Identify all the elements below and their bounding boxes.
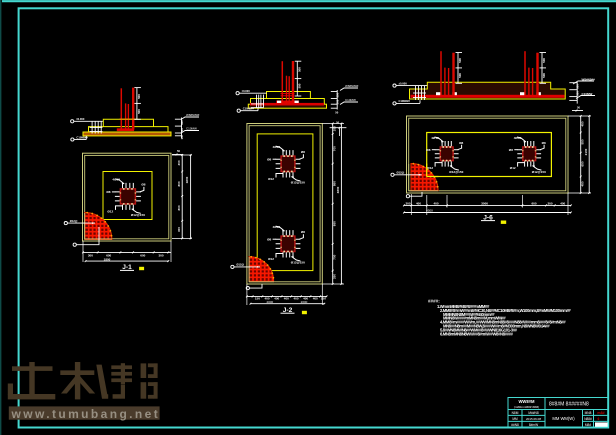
svg-text:MM: MM bbox=[512, 417, 518, 421]
svg-text:600: 600 bbox=[140, 254, 145, 258]
svg-text:C10N8##: C10N8## bbox=[243, 107, 255, 111]
svg-text:±0.000: ±0.000 bbox=[399, 81, 408, 85]
svg-text:8#8#M 8#####N8: 8#8#M 8#####N8 bbox=[549, 402, 589, 408]
svg-text:Ø8: Ø8 bbox=[542, 141, 546, 145]
svg-text:Ø8: Ø8 bbox=[459, 141, 463, 145]
svg-text:250: 250 bbox=[333, 274, 337, 279]
svg-text:500: 500 bbox=[458, 73, 462, 78]
svg-text:300: 300 bbox=[88, 254, 93, 258]
svg-text:Ø12@150: Ø12@150 bbox=[449, 170, 463, 174]
svg-text:700: 700 bbox=[333, 254, 337, 259]
svg-text:Ø8: Ø8 bbox=[267, 237, 271, 241]
svg-text:150: 150 bbox=[321, 297, 326, 301]
svg-text:W8#N8##: W8#N8## bbox=[186, 113, 200, 117]
svg-text:MM WM(W): MM WM(W) bbox=[552, 416, 575, 421]
svg-text:250: 250 bbox=[333, 126, 337, 131]
svg-text:(m##mmM## ##M): (m##mmM## ##M) bbox=[514, 405, 539, 409]
svg-text:400: 400 bbox=[313, 297, 318, 301]
svg-text:4Ø18: 4Ø18 bbox=[431, 136, 439, 140]
svg-text:8#mW: 8#mW bbox=[529, 423, 538, 427]
svg-text:2000: 2000 bbox=[266, 300, 273, 304]
svg-text:450: 450 bbox=[581, 181, 585, 186]
svg-text:50: 50 bbox=[177, 149, 180, 153]
svg-text:300: 300 bbox=[576, 84, 580, 89]
svg-text:450: 450 bbox=[581, 121, 585, 126]
svg-text:500: 500 bbox=[542, 73, 546, 78]
svg-text:700: 700 bbox=[333, 146, 337, 151]
svg-text:400: 400 bbox=[416, 202, 421, 206]
svg-text:400: 400 bbox=[560, 202, 565, 206]
svg-text:±0.000: ±0.000 bbox=[76, 117, 85, 121]
svg-text:300: 300 bbox=[177, 227, 181, 232]
svg-text:Ø8: Ø8 bbox=[426, 148, 430, 152]
svg-text:Ø12@150: Ø12@150 bbox=[131, 213, 145, 217]
svg-text:Ø8: Ø8 bbox=[301, 150, 305, 154]
svg-text:300: 300 bbox=[180, 120, 184, 125]
svg-text:2000: 2000 bbox=[301, 300, 308, 304]
svg-text:100: 100 bbox=[180, 134, 184, 139]
svg-text:4Ø18: 4Ø18 bbox=[273, 145, 281, 149]
svg-text:3000: 3000 bbox=[481, 202, 488, 206]
svg-text:400: 400 bbox=[293, 297, 298, 301]
svg-text:400: 400 bbox=[433, 202, 438, 206]
svg-text:3800: 3800 bbox=[336, 186, 340, 193]
svg-text:Ø12: Ø12 bbox=[268, 257, 274, 261]
svg-text:Ø12@150: Ø12@150 bbox=[532, 170, 546, 174]
svg-text:www.tumubang.net: www.tumubang.net bbox=[11, 407, 161, 421]
svg-text:800: 800 bbox=[177, 181, 181, 186]
svg-text:Ø12: Ø12 bbox=[107, 209, 113, 213]
svg-text:N88#: N88# bbox=[584, 417, 592, 421]
svg-text:Ø8: Ø8 bbox=[301, 230, 305, 234]
svg-text:300: 300 bbox=[547, 202, 552, 206]
svg-text:N8M: N8M bbox=[512, 411, 519, 415]
svg-text:300: 300 bbox=[336, 99, 340, 104]
svg-text:WW8#M: WW8#M bbox=[518, 399, 535, 404]
svg-text:Ø12@150: Ø12@150 bbox=[291, 181, 305, 185]
svg-text:Ø12@: Ø12@ bbox=[70, 219, 78, 223]
svg-text:Ø8: Ø8 bbox=[509, 148, 513, 152]
svg-text:300: 300 bbox=[405, 202, 410, 206]
svg-text:Ø12: Ø12 bbox=[268, 177, 274, 181]
svg-text:300: 300 bbox=[158, 254, 163, 258]
svg-text:4Ø18: 4Ø18 bbox=[514, 136, 522, 140]
svg-text:950: 950 bbox=[333, 221, 337, 226]
svg-text:####:: ####: bbox=[428, 299, 440, 304]
svg-text:500: 500 bbox=[458, 58, 462, 63]
svg-text:M##N8: M##N8 bbox=[528, 411, 539, 415]
svg-text:Ø12: Ø12 bbox=[510, 166, 516, 170]
svg-text:400: 400 bbox=[274, 297, 279, 301]
svg-text:m8#: m8# bbox=[597, 411, 604, 415]
svg-text:950: 950 bbox=[333, 181, 337, 186]
svg-text:2100: 2100 bbox=[584, 148, 588, 155]
svg-text:Ø8: Ø8 bbox=[267, 157, 271, 161]
svg-text:150: 150 bbox=[255, 297, 260, 301]
svg-text:300: 300 bbox=[336, 92, 340, 97]
svg-text:50: 50 bbox=[336, 120, 339, 124]
svg-text:50: 50 bbox=[577, 105, 580, 109]
svg-text:6.MN8mMN8N8WW##8#mW##W8#N8####: 6.MN8mMN8N8WW##8#mW##W8#N8#### bbox=[440, 331, 514, 336]
svg-text:MN8: MN8 bbox=[585, 411, 592, 415]
svg-text:650: 650 bbox=[581, 161, 585, 166]
svg-text:500: 500 bbox=[298, 83, 302, 88]
svg-text:M8#: M8# bbox=[585, 423, 591, 427]
svg-text:4Ø18: 4Ø18 bbox=[273, 225, 281, 229]
svg-text:C10N8##: C10N8## bbox=[399, 99, 411, 103]
svg-text:6: 6 bbox=[598, 417, 600, 421]
svg-text:Ø8: Ø8 bbox=[141, 183, 145, 187]
svg-text:50: 50 bbox=[335, 110, 338, 114]
svg-text:Ø12@: Ø12@ bbox=[397, 171, 405, 175]
svg-text:2015.06.08: 2015.06.08 bbox=[526, 417, 541, 421]
svg-text:500: 500 bbox=[542, 58, 546, 63]
svg-text:800: 800 bbox=[177, 205, 181, 210]
svg-text:600: 600 bbox=[531, 202, 536, 206]
svg-text:1800: 1800 bbox=[104, 257, 111, 261]
svg-text:1800: 1800 bbox=[185, 176, 189, 183]
svg-text:Ø12@: Ø12@ bbox=[236, 263, 244, 267]
svg-text:C10MW: C10MW bbox=[582, 92, 593, 96]
svg-text:300: 300 bbox=[576, 91, 580, 96]
svg-text:300: 300 bbox=[177, 160, 181, 165]
svg-text:4Ø18: 4Ø18 bbox=[112, 178, 120, 182]
svg-text:400: 400 bbox=[284, 297, 289, 301]
svg-text:C10MW: C10MW bbox=[345, 98, 356, 102]
svg-text:4500: 4500 bbox=[426, 209, 433, 213]
svg-text:±0.000: ±0.000 bbox=[242, 89, 251, 93]
svg-text:500: 500 bbox=[137, 94, 141, 99]
svg-text:Ø12@150: Ø12@150 bbox=[291, 261, 305, 265]
svg-text:Ø8: Ø8 bbox=[106, 190, 110, 194]
svg-text:W8#N8##: W8#N8## bbox=[345, 84, 359, 88]
svg-text:W8#N8##: W8#N8## bbox=[582, 77, 596, 81]
svg-text:C10MW: C10MW bbox=[186, 126, 197, 130]
svg-text:500: 500 bbox=[298, 67, 302, 72]
svg-text:##N8: ##N8 bbox=[511, 423, 519, 427]
svg-text:500: 500 bbox=[137, 109, 141, 114]
svg-text:550: 550 bbox=[581, 139, 585, 144]
